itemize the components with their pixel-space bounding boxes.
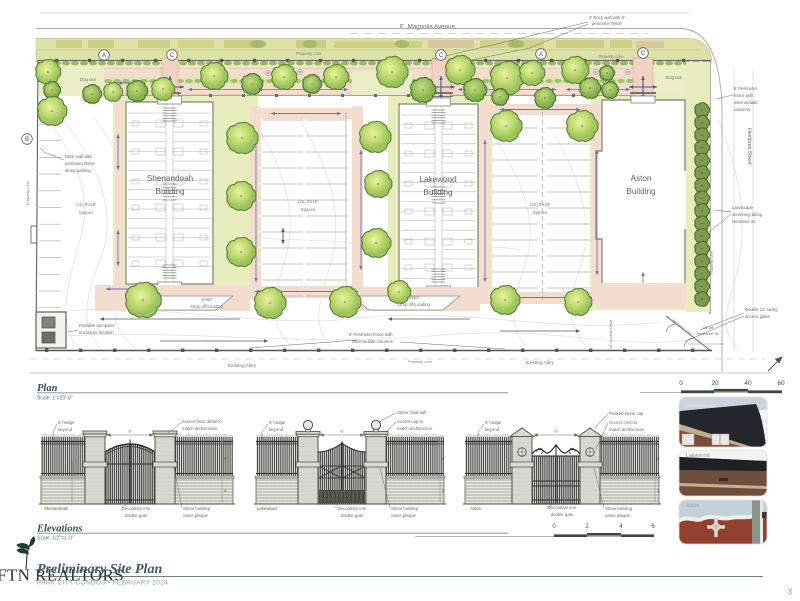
svg-text:Preliminary Site Plan: Preliminary Site Plan bbox=[37, 562, 162, 577]
svg-text:Accent brick detail to: Accent brick detail to bbox=[182, 419, 222, 424]
svg-text:Property Line: Property Line bbox=[408, 359, 433, 364]
svg-text:A: A bbox=[102, 53, 106, 59]
svg-text:Brick wall with: Brick wall with bbox=[65, 154, 93, 159]
svg-text:Stone building: Stone building bbox=[183, 506, 211, 511]
svg-text:Scale: 1"=20'-0": Scale: 1"=20'-0" bbox=[37, 396, 73, 402]
svg-text:Stone building: Stone building bbox=[605, 506, 633, 511]
svg-text:C: C bbox=[439, 53, 444, 59]
svg-text:Lakewood: Lakewood bbox=[419, 175, 457, 184]
svg-text:8' Perimeter: 8' Perimeter bbox=[734, 86, 758, 91]
svg-text:40: 40 bbox=[744, 380, 752, 387]
svg-text:Hembree St.: Hembree St. bbox=[697, 331, 719, 336]
svg-text:name plaque: name plaque bbox=[183, 513, 208, 518]
svg-text:Decorative iron: Decorative iron bbox=[338, 506, 368, 511]
svg-text:Building: Building bbox=[626, 187, 656, 196]
svg-text:B: B bbox=[25, 137, 29, 143]
svg-text:3': 3' bbox=[224, 489, 227, 493]
svg-text:Aston: Aston bbox=[686, 503, 699, 509]
svg-text:intermediate: intermediate bbox=[734, 100, 758, 105]
svg-text:Dog use: Dog use bbox=[80, 77, 97, 82]
svg-text:Dog use: Dog use bbox=[666, 75, 683, 80]
svg-text:Spaces: Spaces bbox=[533, 210, 548, 215]
svg-text:60: 60 bbox=[777, 380, 785, 387]
svg-text:fence with: fence with bbox=[734, 93, 754, 98]
svg-text:6': 6' bbox=[555, 429, 558, 434]
svg-text:6': 6' bbox=[341, 429, 344, 434]
svg-text:Existing Alley: Existing Alley bbox=[228, 363, 257, 369]
svg-text:Property Line: Property Line bbox=[296, 51, 322, 56]
svg-text:3' Brick wall with 5': 3' Brick wall with 5' bbox=[589, 15, 625, 20]
svg-text:beyond: beyond bbox=[485, 427, 500, 432]
svg-text:Building: Building bbox=[155, 187, 185, 196]
svg-text:Double 12' swing: Double 12' swing bbox=[745, 307, 778, 312]
svg-text:Aston: Aston bbox=[631, 174, 652, 183]
svg-text:Plan: Plan bbox=[37, 383, 58, 394]
svg-text:8': 8' bbox=[442, 457, 445, 461]
svg-text:match architecture: match architecture bbox=[182, 426, 218, 431]
svg-text:access gates: access gates bbox=[745, 314, 770, 319]
svg-text:5': 5' bbox=[224, 457, 227, 461]
svg-text:Property Line: Property Line bbox=[598, 54, 624, 59]
svg-text:24' Access Drive: 24' Access Drive bbox=[608, 319, 613, 349]
svg-text:25' off: 25' off bbox=[703, 325, 715, 330]
svg-text:match architecture: match architecture bbox=[397, 426, 433, 431]
svg-text:3': 3' bbox=[442, 489, 445, 493]
svg-text:Shenandoah: Shenandoah bbox=[686, 403, 716, 409]
svg-text:9'x60': 9'x60' bbox=[202, 297, 213, 302]
svg-text:6' hedge: 6' hedge bbox=[485, 420, 502, 425]
svg-text:C: C bbox=[641, 51, 646, 57]
svg-text:(22) 9'x18': (22) 9'x18' bbox=[298, 199, 318, 204]
svg-text:perimeter fence: perimeter fence bbox=[65, 161, 95, 166]
svg-text:Lakewood: Lakewood bbox=[257, 506, 277, 511]
svg-text:Decorative iron: Decorative iron bbox=[122, 506, 152, 511]
svg-text:(12) 9'x18': (12) 9'x18' bbox=[76, 202, 96, 207]
svg-text:Decorative iron: Decorative iron bbox=[548, 505, 578, 510]
svg-text:name plaque: name plaque bbox=[391, 513, 416, 518]
svg-text:3: 3 bbox=[788, 589, 792, 596]
svg-text:Aston: Aston bbox=[470, 506, 482, 511]
svg-text:intermediate columns: intermediate columns bbox=[352, 339, 393, 344]
svg-text:columns: columns bbox=[734, 107, 750, 112]
svg-text:Drop off/Loading: Drop off/Loading bbox=[191, 304, 223, 309]
svg-text:0: 0 bbox=[679, 380, 683, 387]
svg-text:6': 6' bbox=[129, 429, 132, 434]
svg-text:C: C bbox=[170, 53, 175, 59]
svg-text:Scale: 1/2"=1'-0": Scale: 1/2"=1'-0" bbox=[37, 536, 74, 542]
svg-text:20: 20 bbox=[711, 380, 719, 387]
svg-text:Hembree St.: Hembree St. bbox=[732, 219, 756, 224]
svg-text:(22) 9'x18': (22) 9'x18' bbox=[530, 202, 550, 207]
svg-text:screening along: screening along bbox=[732, 212, 763, 217]
svg-text:beyond: beyond bbox=[58, 427, 73, 432]
svg-text:Possible dumpster: Possible dumpster bbox=[79, 323, 115, 328]
svg-text:Existing Alley: Existing Alley bbox=[526, 360, 555, 366]
svg-text:Lakewood: Lakewood bbox=[686, 453, 710, 459]
svg-text:Property Line: Property Line bbox=[25, 180, 30, 205]
svg-text:Peaked stone cap: Peaked stone cap bbox=[609, 411, 644, 416]
svg-text:PARK CITY CONDOS • FEBRUARY 20: PARK CITY CONDOS • FEBRUARY 2024 bbox=[37, 580, 168, 587]
svg-text:Accent cap to: Accent cap to bbox=[397, 419, 424, 424]
svg-text:Spaces: Spaces bbox=[301, 207, 316, 212]
svg-text:8' Perimeter fence with: 8' Perimeter fence with bbox=[349, 332, 393, 337]
svg-text:Accent crest to: Accent crest to bbox=[609, 420, 638, 425]
svg-text:A: A bbox=[539, 52, 543, 58]
svg-text:Hembree Street: Hembree Street bbox=[746, 128, 752, 165]
svg-text:6' hedge: 6' hedge bbox=[58, 420, 75, 425]
svg-text:Spaces: Spaces bbox=[79, 210, 94, 215]
svg-text:double gate: double gate bbox=[125, 513, 148, 518]
svg-text:6' hedge: 6' hedge bbox=[269, 420, 286, 425]
svg-text:double gate: double gate bbox=[341, 513, 364, 518]
svg-text:along parking: along parking bbox=[65, 168, 91, 173]
svg-text:8': 8' bbox=[657, 457, 660, 461]
svg-text:double gate: double gate bbox=[551, 512, 574, 517]
svg-text:E. Magnolia Avenue: E. Magnolia Avenue bbox=[400, 24, 455, 31]
svg-text:Landscape: Landscape bbox=[732, 205, 754, 210]
svg-text:name plaque: name plaque bbox=[605, 513, 630, 518]
svg-text:enclosure location: enclosure location bbox=[79, 330, 114, 335]
svg-text:Stone finial ball: Stone finial ball bbox=[397, 410, 426, 415]
svg-text:Shenandoah: Shenandoah bbox=[44, 506, 69, 511]
svg-text:perimeter fence: perimeter fence bbox=[592, 21, 622, 26]
svg-text:Stone building: Stone building bbox=[391, 506, 419, 511]
svg-text:match architecture: match architecture bbox=[609, 427, 645, 432]
svg-text:Building: Building bbox=[423, 188, 453, 197]
svg-text:3': 3' bbox=[657, 489, 660, 493]
svg-text:Shenandoah: Shenandoah bbox=[147, 174, 194, 183]
svg-text:beyond: beyond bbox=[269, 427, 284, 432]
